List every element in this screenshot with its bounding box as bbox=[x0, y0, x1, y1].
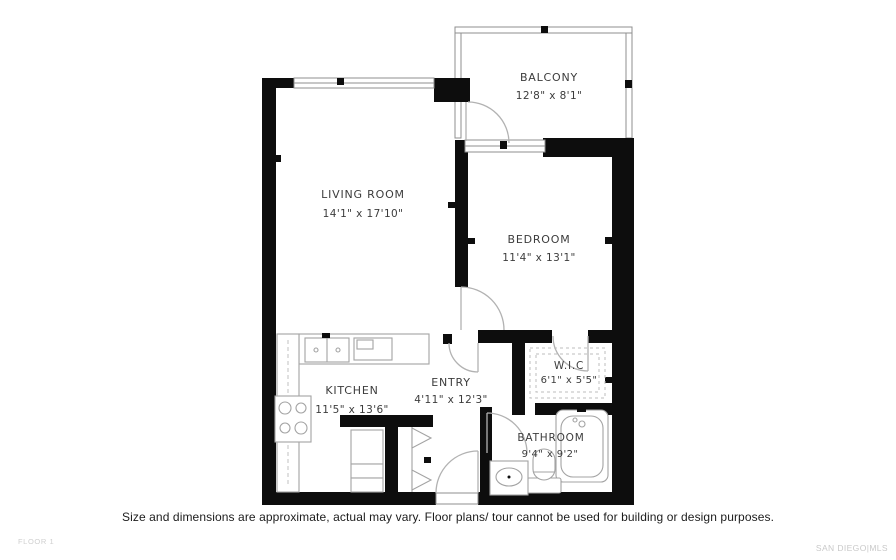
railing-tick bbox=[541, 26, 548, 33]
wall-top-left-segment bbox=[262, 78, 296, 88]
floor-plan-canvas: BALCONY 12'8" x 8'1" LIVING ROOM 14'1" x… bbox=[0, 0, 896, 560]
room-label-wic: W.I.C bbox=[554, 360, 584, 372]
floor-number-label: FLOOR 1 bbox=[18, 537, 54, 546]
wall-living-bedroom bbox=[455, 140, 468, 287]
entry-threshold bbox=[436, 493, 478, 504]
living-room-window bbox=[294, 78, 434, 88]
wall-bottom-left bbox=[262, 492, 436, 505]
dishwasher bbox=[354, 338, 392, 360]
room-dims-wic: 6'1" x 5'5" bbox=[541, 375, 598, 386]
room-label-bedroom: BEDROOM bbox=[507, 233, 570, 246]
wall-balcony-bedroom bbox=[543, 138, 634, 157]
balcony-door bbox=[466, 102, 509, 143]
wall-top-junction bbox=[434, 78, 470, 102]
room-label-kitchen: KITCHEN bbox=[325, 384, 378, 397]
disclaimer-text: Size and dimensions are approximate, act… bbox=[0, 510, 896, 524]
appliance-stack bbox=[351, 430, 383, 492]
floor-plan-page: BALCONY 12'8" x 8'1" LIVING ROOM 14'1" x… bbox=[0, 0, 896, 560]
room-dims-kitchen: 11'5" x 13'6" bbox=[315, 404, 389, 416]
bedroom-window bbox=[465, 140, 545, 152]
faucet-mark bbox=[322, 333, 330, 338]
bedroom-entry-door bbox=[449, 343, 478, 372]
wic-shelving bbox=[530, 348, 605, 398]
closet-bifold-doors bbox=[412, 427, 431, 492]
stove bbox=[275, 396, 311, 442]
wall-closet-mid bbox=[385, 427, 398, 505]
wall-right bbox=[612, 157, 634, 505]
railing-tick bbox=[625, 80, 632, 88]
room-dims-bathroom: 9'4" x 9'2" bbox=[522, 449, 579, 460]
room-dims-bedroom: 11'4" x 13'1" bbox=[502, 252, 576, 264]
bathtub bbox=[556, 407, 608, 482]
wall-wic-top-right bbox=[588, 330, 612, 343]
room-label-entry: ENTRY bbox=[431, 376, 471, 389]
room-dims-entry: 4'11" x 12'3" bbox=[414, 394, 488, 406]
room-label-living: LIVING ROOM bbox=[321, 188, 405, 201]
wall-wic-left bbox=[512, 330, 525, 415]
tub-faucet-mark bbox=[577, 407, 586, 412]
wall-closet-top bbox=[340, 415, 433, 427]
room-label-balcony: BALCONY bbox=[520, 71, 578, 84]
sink-vanity bbox=[490, 461, 528, 495]
room-label-bathroom: BATHROOM bbox=[517, 432, 584, 444]
wall-left bbox=[262, 78, 276, 505]
wall-door-jamb bbox=[443, 334, 452, 344]
bedroom-door bbox=[461, 287, 504, 330]
room-dims-balcony: 12'8" x 8'1" bbox=[516, 90, 583, 102]
mls-brand-label: SAN DIEGO|MLS bbox=[816, 543, 888, 553]
entry-door bbox=[436, 451, 478, 493]
room-dims-living: 14'1" x 17'10" bbox=[323, 208, 404, 220]
